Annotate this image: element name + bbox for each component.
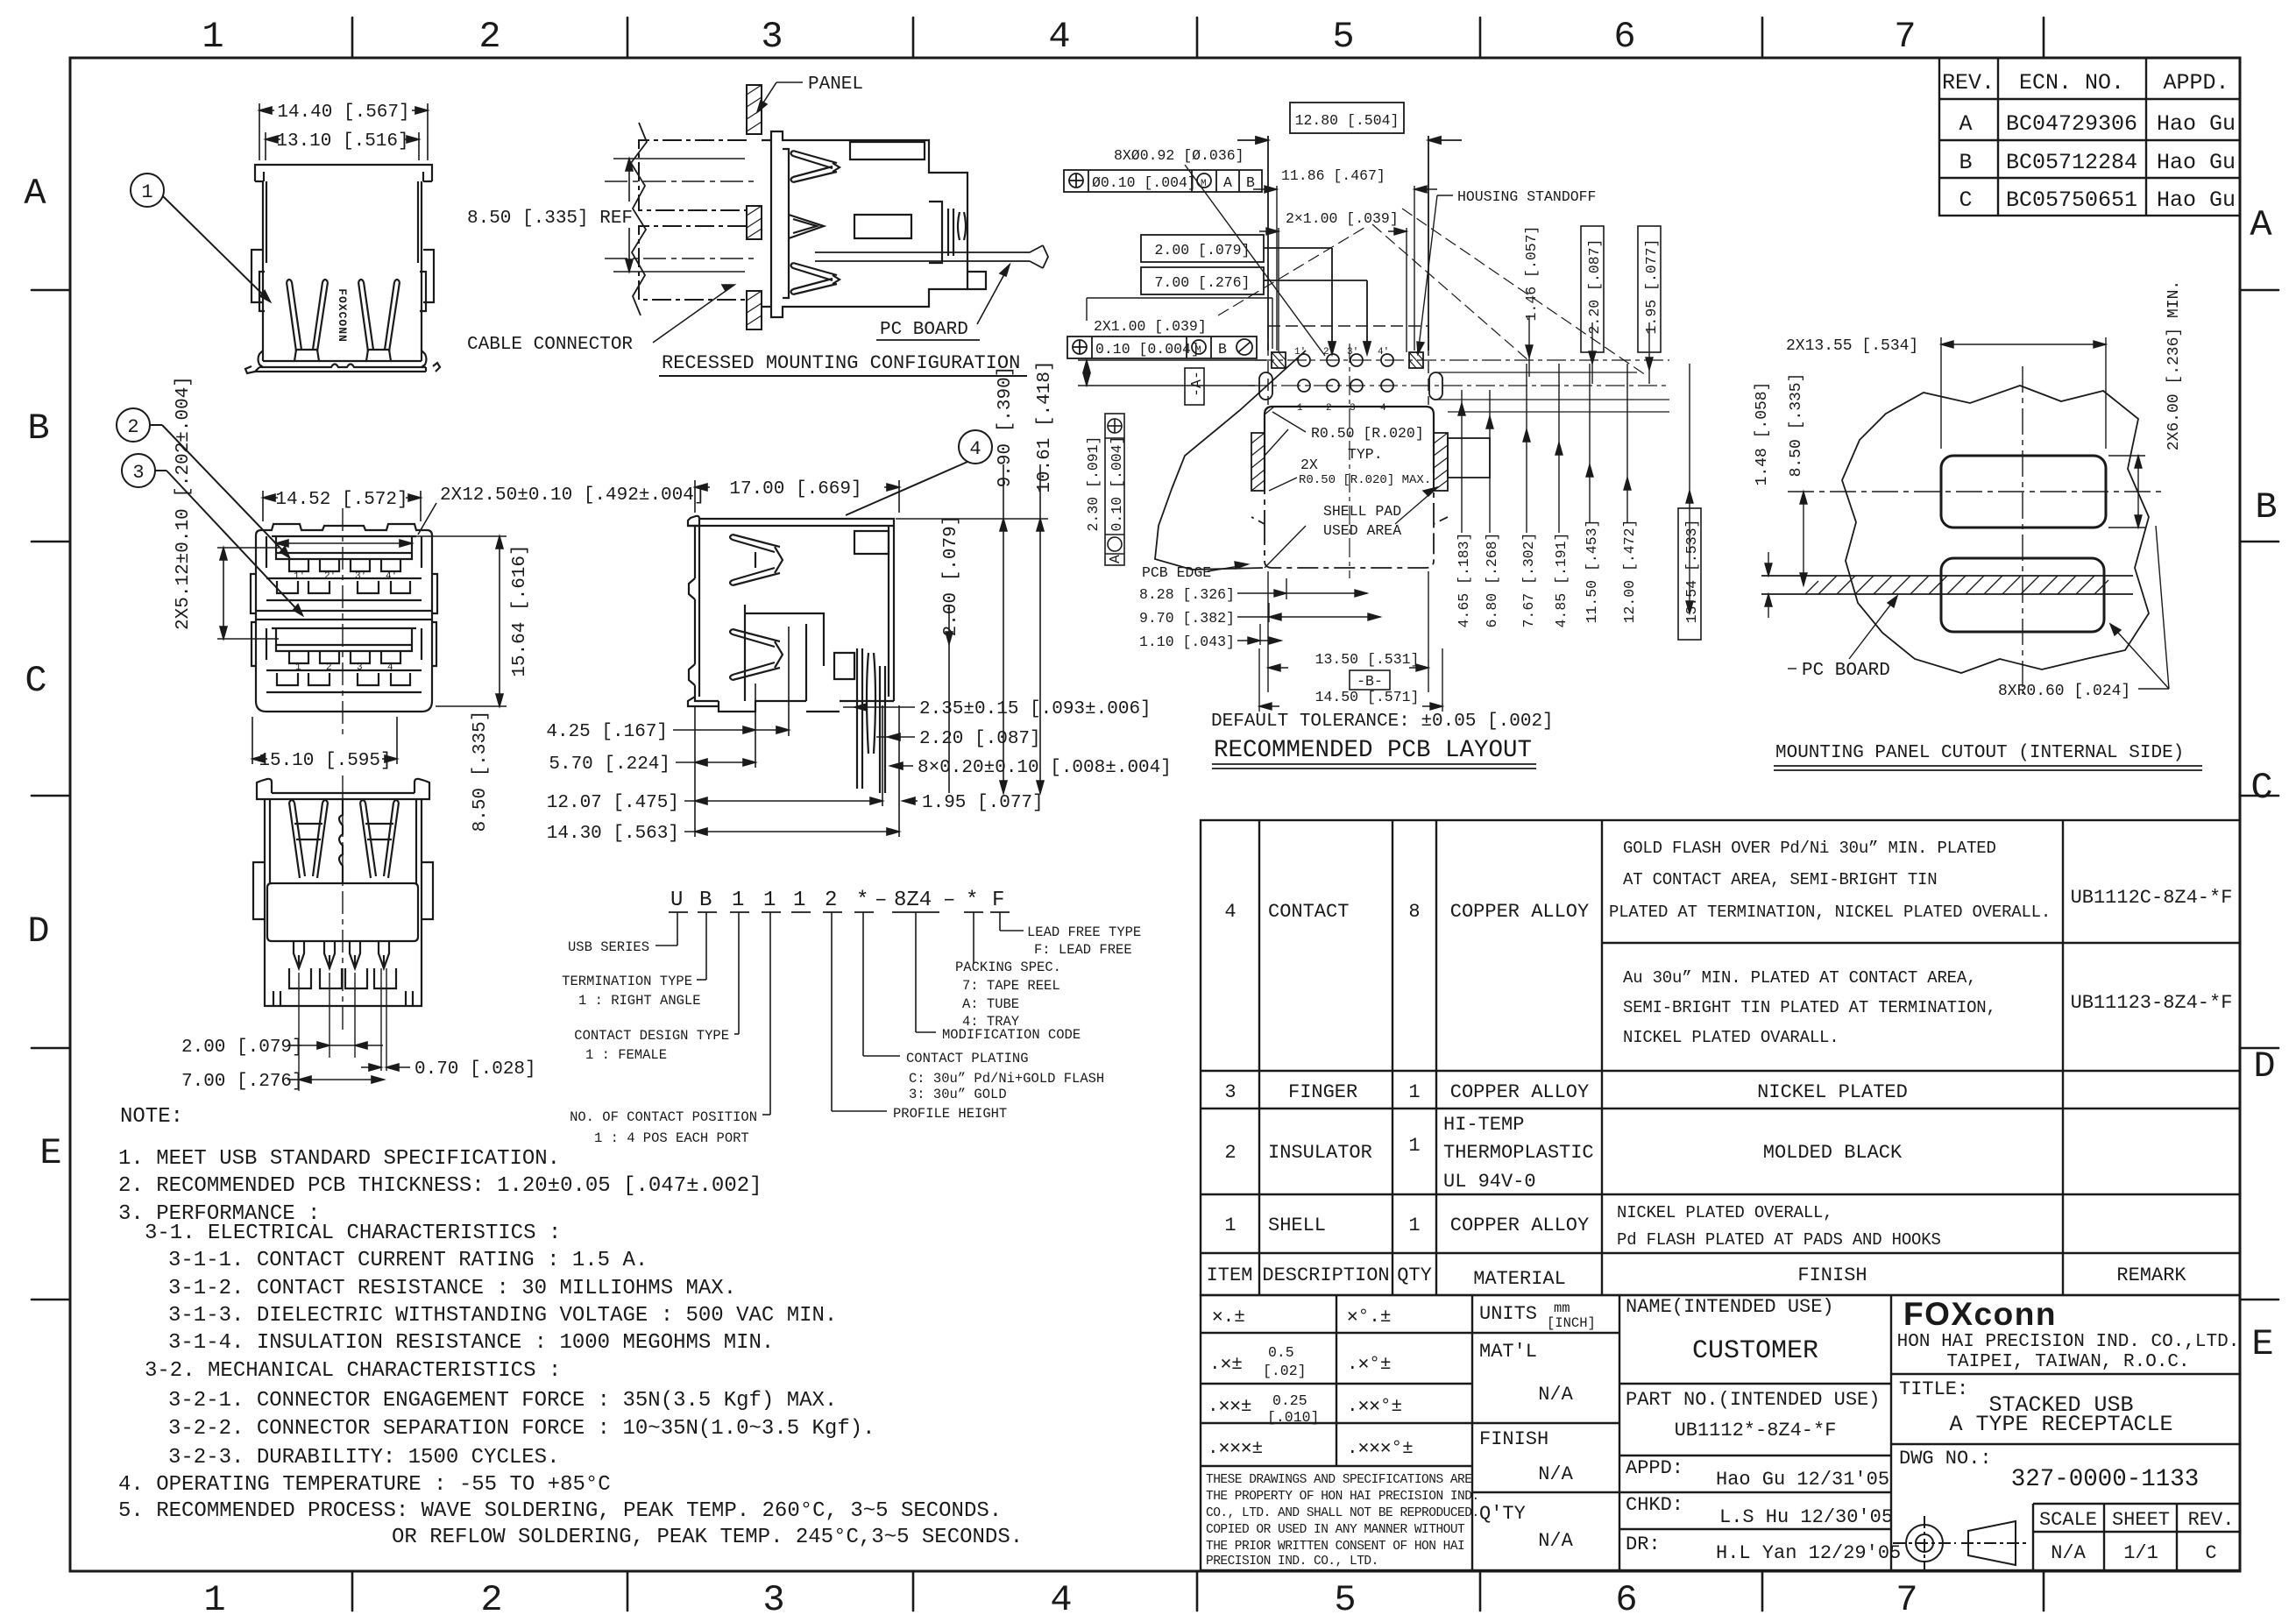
svg-text:4': 4'	[1378, 347, 1389, 358]
svg-text:[.010]: [.010]	[1267, 1409, 1319, 1426]
svg-text:3-2. MECHANICAL CHARACTERISTIC: 3-2. MECHANICAL CHARACTERISTICS :	[145, 1359, 561, 1383]
svg-text:1: 1	[732, 889, 744, 912]
svg-text:1 : 4 POS EACH PORT: 1 : 4 POS EACH PORT	[594, 1130, 749, 1146]
svg-text:*: *	[966, 889, 978, 912]
svg-text:Hao Gu: Hao Gu	[2157, 150, 2236, 175]
svg-text:mm: mm	[1554, 1300, 1570, 1316]
svg-text:N/A: N/A	[1538, 1384, 1573, 1406]
svg-text:8.50 [.335] REF: 8.50 [.335] REF	[467, 209, 633, 229]
svg-text:8.50 [.335]: 8.50 [.335]	[1788, 373, 1805, 478]
svg-text:3-2-3. DURABILITY: 1500 CYCLES: 3-2-3. DURABILITY: 1500 CYCLES.	[168, 1446, 559, 1470]
svg-text:MAT'L: MAT'L	[1479, 1341, 1537, 1363]
svg-text:2: 2	[825, 889, 837, 912]
svg-text:COPPER ALLOY: COPPER ALLOY	[1450, 1081, 1589, 1103]
svg-text:1: 1	[793, 889, 805, 912]
svg-text:.✕°±: .✕°±	[1347, 1355, 1391, 1375]
svg-text:7: 7	[1894, 16, 1916, 58]
svg-text:8Z4: 8Z4	[894, 889, 932, 912]
svg-text:2X12.50±0.10 [.492±.004]: 2X12.50±0.10 [.492±.004]	[440, 485, 705, 506]
svg-text:CONTACT DESIGN TYPE: CONTACT DESIGN TYPE	[574, 1028, 729, 1044]
svg-text:2X6.00 [.236] MIN.: 2X6.00 [.236] MIN.	[2165, 280, 2183, 450]
svg-text:1.95 [.077]: 1.95 [.077]	[1643, 239, 1660, 335]
svg-text:D: D	[2253, 1045, 2275, 1087]
svg-text:3-1-3. DIELECTRIC WITHSTANDING: 3-1-3. DIELECTRIC WITHSTANDING VOLTAGE :…	[168, 1304, 837, 1328]
svg-text:RECESSED MOUNTING CONFIGURATIO: RECESSED MOUNTING CONFIGURATION	[662, 352, 1020, 374]
svg-text:INSULATOR: INSULATOR	[1268, 1142, 1372, 1164]
svg-text:6: 6	[1615, 1579, 1637, 1621]
svg-text:TYP.: TYP.	[1348, 446, 1383, 463]
svg-text:D: D	[27, 910, 49, 953]
svg-text:4: 4	[1048, 16, 1070, 58]
svg-text:PCB EDGE: PCB EDGE	[1142, 564, 1211, 581]
svg-text:4.25 [.167]: 4.25 [.167]	[546, 722, 668, 742]
svg-text:1: 1	[1297, 403, 1303, 414]
svg-text:1: 1	[1408, 1215, 1420, 1236]
svg-text:4.65 [.183]: 4.65 [.183]	[1456, 533, 1472, 628]
svg-text:2.35±0.15 [.093±.006]: 2.35±0.15 [.093±.006]	[919, 699, 1152, 719]
svg-text:3: 3	[132, 462, 144, 484]
svg-text:6: 6	[1613, 16, 1635, 58]
svg-text:1: 1	[1408, 1081, 1420, 1103]
svg-text:8XR0.60 [.024]: 8XR0.60 [.024]	[1998, 683, 2130, 700]
svg-text:N/A: N/A	[1538, 1463, 1573, 1485]
svg-text:2.00 [.079]: 2.00 [.079]	[181, 1038, 303, 1058]
svg-text:TERMINATION TYPE: TERMINATION TYPE	[562, 974, 692, 989]
svg-text:2: 2	[1224, 1142, 1236, 1164]
svg-text:4: TRAY: 4: TRAY	[962, 1014, 1020, 1030]
svg-text:4': 4'	[386, 571, 397, 582]
svg-text:3-1-4. INSULATION RESISTANCE :: 3-1-4. INSULATION RESISTANCE : 1000 MEGO…	[168, 1331, 774, 1355]
svg-text:0.10 [0.004]: 0.10 [0.004]	[1095, 341, 1200, 358]
svg-text:HI-TEMP: HI-TEMP	[1443, 1114, 1524, 1136]
svg-text:3-1-1. CONTACT CURRENT RATING: 3-1-1. CONTACT CURRENT RATING : 1.5 A.	[168, 1249, 648, 1272]
svg-text:1: 1	[1224, 1215, 1236, 1236]
svg-text:PRECISION IND. CO., LTD.: PRECISION IND. CO., LTD.	[1206, 1555, 1378, 1569]
svg-text:SHELL: SHELL	[1268, 1215, 1326, 1236]
svg-text:MOLDED BLACK: MOLDED BLACK	[1763, 1142, 1903, 1164]
svg-text:2X5.12±0.10 [.202±.004]: 2X5.12±0.10 [.202±.004]	[174, 376, 194, 630]
svg-text:B: B	[1246, 174, 1255, 191]
svg-text:.✕✕✕±: .✕✕✕±	[1208, 1439, 1263, 1459]
svg-text:5. RECOMMENDED PROCESS: WAVE S: 5. RECOMMENDED PROCESS: WAVE SOLDERING, …	[118, 1499, 1002, 1523]
svg-text:-A-: -A-	[1188, 371, 1205, 397]
svg-text:11.86 [.467]: 11.86 [.467]	[1281, 167, 1385, 184]
svg-text:COPIED OR USED IN ANY MANNER W: COPIED OR USED IN ANY MANNER WITHOUT	[1206, 1523, 1465, 1537]
svg-text:CUSTOMER: CUSTOMER	[1692, 1336, 1818, 1366]
svg-text:A: A	[1959, 111, 1972, 137]
svg-text:2×1.00 [.039]: 2×1.00 [.039]	[1286, 210, 1399, 227]
svg-text:1: 1	[295, 662, 301, 673]
svg-text:NAME(INTENDED USE): NAME(INTENDED USE)	[1626, 1296, 1834, 1318]
svg-text:2: 2	[480, 1579, 502, 1621]
svg-text:B: B	[1218, 341, 1227, 358]
svg-text:SHELL PAD: SHELL PAD	[1323, 503, 1401, 520]
svg-text:B: B	[27, 407, 49, 450]
svg-text:14.30 [.563]: 14.30 [.563]	[547, 824, 679, 844]
svg-text:-B-: -B-	[1357, 673, 1383, 690]
svg-text:SCALE: SCALE	[2039, 1509, 2097, 1531]
svg-text:LEAD FREE TYPE: LEAD FREE TYPE	[1027, 924, 1141, 940]
svg-text:PANEL: PANEL	[808, 74, 863, 95]
svg-text:GOLD FLASH OVER Pd/Ni 30u” MIN: GOLD FLASH OVER Pd/Ni 30u” MIN. PLATED	[1623, 839, 1996, 858]
svg-text:A: A	[1107, 555, 1123, 563]
svg-text:14.50 [.571]: 14.50 [.571]	[1315, 689, 1420, 705]
svg-text:3: 3	[761, 16, 783, 58]
svg-text:–: –	[943, 889, 955, 912]
svg-text:APPD.: APPD.	[2163, 70, 2229, 96]
svg-text:APPD:: APPD:	[1626, 1457, 1683, 1479]
svg-text:1 : RIGHT ANGLE: 1 : RIGHT ANGLE	[578, 993, 701, 1009]
svg-text:SEMI-BRIGHT TIN PLATED AT TERM: SEMI-BRIGHT TIN PLATED AT TERMINATION,	[1623, 998, 1996, 1017]
svg-text:4: 4	[1380, 403, 1386, 414]
svg-text:2.30 [.091]: 2.30 [.091]	[1085, 436, 1102, 532]
svg-text:8XØ0.92 [Ø.036]: 8XØ0.92 [Ø.036]	[1114, 147, 1244, 164]
svg-text:13.50 [.531]: 13.50 [.531]	[1315, 651, 1420, 668]
svg-text:2: 2	[127, 416, 138, 438]
svg-text:UL 94V-0: UL 94V-0	[1443, 1171, 1536, 1193]
svg-text:H.L Yan 12/29'05: H.L Yan 12/29'05	[1716, 1542, 1901, 1564]
svg-text:N/A: N/A	[1538, 1530, 1573, 1552]
svg-text:E: E	[2251, 1323, 2273, 1365]
svg-text:1': 1'	[294, 571, 305, 582]
svg-text:11.50 [.453]: 11.50 [.453]	[1584, 520, 1600, 624]
svg-text:Ø0.10 [.004]: Ø0.10 [.004]	[1092, 174, 1196, 191]
svg-text:1: 1	[202, 16, 223, 58]
svg-text:REV.: REV.	[2188, 1509, 2235, 1531]
svg-text:NO. OF CONTACT POSITION: NO. OF CONTACT POSITION	[570, 1109, 757, 1125]
svg-text:M: M	[1201, 179, 1207, 189]
svg-text:REMARK: REMARK	[2116, 1264, 2186, 1286]
svg-text:8×0.20±0.10 [.008±.004]: 8×0.20±0.10 [.008±.004]	[918, 758, 1172, 778]
svg-text:7: 7	[1896, 1579, 1917, 1621]
svg-text:.✕✕±: .✕✕±	[1208, 1397, 1252, 1417]
svg-text:SHEET: SHEET	[2112, 1509, 2170, 1531]
svg-text:BC05712284: BC05712284	[2006, 150, 2137, 175]
svg-text:2: 2	[326, 662, 332, 673]
svg-text:Au 30u” MIN. PLATED AT CONTAC: Au 30u” MIN. PLATED AT CONTACT AREA,	[1623, 968, 1976, 988]
svg-text:1: 1	[141, 181, 152, 203]
svg-text:FINISH: FINISH	[1797, 1264, 1867, 1286]
svg-text:3-1-2. CONTACT RESISTANCE : 30: 3-1-2. CONTACT RESISTANCE : 30 MILLIOHMS…	[168, 1277, 736, 1300]
svg-text:3-2-1. CONNECTOR ENGAGEMENT FO: 3-2-1. CONNECTOR ENGAGEMENT FORCE : 35N(…	[168, 1389, 837, 1413]
svg-text:1.10 [.043]: 1.10 [.043]	[1139, 634, 1235, 650]
svg-text:NICKEL PLATED: NICKEL PLATED	[1757, 1081, 1908, 1103]
svg-text:UB11123-8Z4-*F: UB11123-8Z4-*F	[2071, 992, 2233, 1014]
svg-text:9.90 [.390]: 9.90 [.390]	[996, 366, 1016, 488]
svg-text:3: 3	[762, 1579, 784, 1621]
svg-text:12.00 [.472]: 12.00 [.472]	[1621, 520, 1638, 624]
svg-text:DWG NO.:: DWG NO.:	[1899, 1448, 1992, 1470]
svg-text:PC BOARD: PC BOARD	[1802, 661, 1890, 681]
svg-text:R0.50 [R.020] MAX.: R0.50 [R.020] MAX.	[1299, 473, 1431, 487]
svg-text:THE PROPERTY OF HON HAI PRECIS: THE PROPERTY OF HON HAI PRECISION IND.	[1206, 1490, 1479, 1504]
svg-text:NOTE:: NOTE:	[120, 1105, 183, 1129]
svg-text:14.40 [.567]: 14.40 [.567]	[277, 103, 409, 123]
svg-text:8.28 [.326]: 8.28 [.326]	[1139, 586, 1235, 603]
svg-text:.✕±: .✕±	[1209, 1355, 1243, 1375]
svg-text:A: A	[1223, 174, 1232, 191]
svg-text:13.54 [.533]: 13.54 [.533]	[1683, 520, 1700, 624]
svg-text:CONTACT: CONTACT	[1268, 901, 1349, 923]
svg-text:C: 30u” Pd/Ni+GOLD FLASH: C: 30u” Pd/Ni+GOLD FLASH	[909, 1071, 1104, 1087]
svg-text:CABLE CONNECTOR: CABLE CONNECTOR	[467, 335, 633, 355]
svg-text:Hao Gu: Hao Gu	[2157, 188, 2236, 213]
svg-text:B: B	[699, 889, 712, 912]
svg-text:8: 8	[1408, 901, 1420, 923]
svg-text:FINGER: FINGER	[1288, 1081, 1357, 1103]
svg-text:9.70 [.382]: 9.70 [.382]	[1139, 610, 1235, 627]
svg-text:2': 2'	[1323, 347, 1335, 358]
svg-text:A: TUBE: A: TUBE	[962, 996, 1019, 1012]
svg-text:MOUNTING PANEL CUTOUT (INTERNA: MOUNTING PANEL CUTOUT (INTERNAL SIDE)	[1775, 743, 2184, 763]
svg-text:2.20 [.087]: 2.20 [.087]	[919, 729, 1041, 749]
svg-text:TITLE:: TITLE:	[1899, 1378, 1968, 1400]
svg-text:FOXCONN: FOXCONN	[336, 288, 349, 343]
svg-text:3: 30u” GOLD: 3: 30u” GOLD	[909, 1087, 1007, 1102]
svg-text:3: 3	[357, 662, 363, 673]
svg-text:1.46 [.057]: 1.46 [.057]	[1523, 226, 1540, 322]
svg-text:1.48 [.058]: 1.48 [.058]	[1754, 382, 1771, 486]
svg-text:Hao Gu: Hao Gu	[2157, 111, 2236, 137]
svg-text:F: F	[992, 889, 1004, 912]
svg-text:[.02]: [.02]	[1263, 1363, 1307, 1379]
svg-text:ITEM: ITEM	[1207, 1264, 1253, 1286]
svg-text:USED AREA: USED AREA	[1323, 522, 1401, 539]
svg-text:5: 5	[1334, 1579, 1356, 1621]
svg-text:Hao Gu 12/31'05: Hao Gu 12/31'05	[1716, 1469, 1889, 1491]
svg-text:2.00 [.079]: 2.00 [.079]	[1155, 242, 1251, 259]
svg-text:N/A: N/A	[2051, 1542, 2086, 1564]
svg-text:6.80 [.268]: 6.80 [.268]	[1484, 533, 1500, 628]
svg-text:DESCRIPTION: DESCRIPTION	[1262, 1264, 1389, 1286]
svg-text:3: 3	[1224, 1081, 1236, 1103]
svg-text:DEFAULT TOLERANCE: ±0.05 [.002: DEFAULT TOLERANCE: ±0.05 [.002]	[1211, 712, 1554, 732]
svg-text:2.20 [.087]: 2.20 [.087]	[1586, 239, 1603, 335]
svg-text:AT CONTACT AREA, SEMI-BRIGHT T: AT CONTACT AREA, SEMI-BRIGHT TIN	[1623, 870, 1937, 889]
svg-text:0.25: 0.25	[1272, 1392, 1307, 1409]
svg-text:PART NO.(INTENDED USE): PART NO.(INTENDED USE)	[1626, 1389, 1880, 1411]
svg-text:C: C	[2250, 767, 2272, 809]
svg-text:B: B	[2255, 486, 2277, 528]
svg-text:8.50 [.335]: 8.50 [.335]	[471, 711, 491, 832]
svg-text:17.00 [.669]: 17.00 [.669]	[729, 479, 861, 499]
svg-text:5: 5	[1332, 16, 1354, 58]
svg-text:UB1112C-8Z4-*F: UB1112C-8Z4-*F	[2071, 887, 2233, 909]
svg-text:A: A	[24, 173, 46, 215]
svg-text:2. RECOMMENDED PCB THICKNESS:: 2. RECOMMENDED PCB THICKNESS: 1.20±0.05 …	[118, 1174, 762, 1198]
svg-text:2X: 2X	[1300, 457, 1318, 473]
svg-text:12.07 [.475]: 12.07 [.475]	[547, 793, 679, 813]
svg-text:0.5: 0.5	[1268, 1344, 1294, 1361]
svg-text:USB SERIES: USB SERIES	[568, 939, 649, 955]
svg-text:✕.±: ✕.±	[1212, 1307, 1245, 1328]
svg-text:Q'TY: Q'TY	[1479, 1503, 1526, 1525]
svg-text:.✕✕°±: .✕✕°±	[1347, 1397, 1402, 1417]
svg-text:2.00 [.079]: 2.00 [.079]	[941, 515, 961, 637]
svg-text:Pd FLASH PLATED AT PADS AND HO: Pd FLASH PLATED AT PADS AND HOOKS	[1617, 1230, 1941, 1250]
svg-text:7.00 [.276]: 7.00 [.276]	[181, 1072, 303, 1092]
svg-text:ECN. NO.: ECN. NO.	[2019, 70, 2124, 96]
svg-text:4: 4	[1050, 1579, 1072, 1621]
svg-text:7.00 [.276]: 7.00 [.276]	[1155, 274, 1251, 291]
svg-text:C: C	[1959, 188, 1972, 213]
svg-text:REV.: REV.	[1942, 70, 1995, 96]
svg-text:A TYPE RECEPTACLE: A TYPE RECEPTACLE	[1949, 1412, 2172, 1437]
svg-text:7: TAPE REEL: 7: TAPE REEL	[962, 978, 1060, 994]
svg-text:–: –	[875, 889, 887, 912]
svg-text:C: C	[2205, 1542, 2216, 1564]
svg-text:THERMOPLASTIC: THERMOPLASTIC	[1443, 1142, 1594, 1164]
svg-text:U: U	[670, 889, 683, 912]
svg-text:TAIPEI, TAIWAN, R.O.C.: TAIPEI, TAIWAN, R.O.C.	[1946, 1352, 2189, 1372]
svg-text:BC05750651: BC05750651	[2006, 188, 2137, 213]
svg-text:A: A	[2250, 204, 2272, 246]
svg-text:1: 1	[203, 1579, 225, 1621]
svg-text:COPPER ALLOY: COPPER ALLOY	[1450, 901, 1589, 923]
svg-text:2X1.00 [.039]: 2X1.00 [.039]	[1094, 318, 1207, 335]
svg-text:THE PRIOR WRITTEN CONSENT OF H: THE PRIOR WRITTEN CONSENT OF HON HAI	[1206, 1540, 1464, 1554]
svg-text:1: 1	[763, 889, 776, 912]
svg-text:[INCH]: [INCH]	[1547, 1315, 1596, 1331]
svg-text:5.70 [.224]: 5.70 [.224]	[549, 754, 670, 775]
svg-text:12.80 [.504]: 12.80 [.504]	[1295, 112, 1400, 129]
svg-text:C: C	[25, 660, 46, 702]
svg-text:3: 3	[1350, 403, 1356, 414]
svg-text:NICKEL PLATED OVERALL,: NICKEL PLATED OVERALL,	[1617, 1203, 1832, 1222]
svg-text:✕°.±: ✕°.±	[1347, 1307, 1391, 1328]
svg-text:UNITS: UNITS	[1479, 1303, 1537, 1325]
svg-text:BC04729306: BC04729306	[2006, 111, 2137, 137]
svg-text:PLATED AT TERMINATION, NICKEL: PLATED AT TERMINATION, NICKEL PLATED OVE…	[1609, 903, 2051, 922]
svg-text:327-0000-1133: 327-0000-1133	[2011, 1466, 2200, 1493]
svg-text:E: E	[39, 1132, 61, 1174]
svg-text:1: 1	[1408, 1135, 1420, 1157]
svg-text:R0.50 [R.020]: R0.50 [R.020]	[1311, 425, 1424, 442]
svg-text:HON HAI PRECISION IND. CO.,LTD: HON HAI PRECISION IND. CO.,LTD.	[1897, 1332, 2240, 1352]
svg-text:3': 3'	[355, 571, 366, 582]
svg-text:14.52 [.572]: 14.52 [.572]	[275, 490, 407, 510]
svg-text:2: 2	[478, 16, 500, 58]
svg-text:OR REFLOW SOLDERING, PEAK TEMP: OR REFLOW SOLDERING, PEAK TEMP. 245°C,3~…	[392, 1526, 1023, 1549]
svg-text:PACKING SPEC.: PACKING SPEC.	[955, 960, 1061, 975]
svg-text:CONTACT PLATING: CONTACT PLATING	[906, 1051, 1029, 1066]
svg-text:DR:: DR:	[1626, 1533, 1661, 1555]
svg-text:FINISH: FINISH	[1479, 1428, 1548, 1450]
svg-text:0.10 [.004]: 0.10 [.004]	[1109, 436, 1125, 532]
svg-text:COPPER ALLOY: COPPER ALLOY	[1450, 1215, 1589, 1236]
svg-text:15.64 [.616]: 15.64 [.616]	[510, 544, 530, 676]
svg-text:*: *	[856, 889, 868, 912]
svg-text:10.61 [.418]: 10.61 [.418]	[1035, 360, 1055, 492]
svg-text:F: LEAD FREE: F: LEAD FREE	[1034, 942, 1132, 958]
svg-text:THESE DRAWINGS AND SPECIFICATI: THESE DRAWINGS AND SPECIFICATIONS ARE	[1206, 1473, 1471, 1487]
svg-text:2': 2'	[324, 571, 336, 582]
svg-text:HOUSING STANDOFF: HOUSING STANDOFF	[1457, 188, 1596, 205]
svg-text:4.85 [.191]: 4.85 [.191]	[1553, 533, 1570, 628]
svg-text:4: 4	[387, 662, 393, 673]
svg-text:4. OPERATING TEMPERATURE : -55: 4. OPERATING TEMPERATURE : -55 TO +85°C	[118, 1473, 611, 1497]
svg-text:B: B	[1959, 150, 1972, 175]
svg-text:QTY: QTY	[1397, 1264, 1432, 1286]
svg-text:4: 4	[969, 438, 981, 460]
svg-text:0.70 [.028]: 0.70 [.028]	[415, 1059, 536, 1080]
svg-text:1.95 [.077]: 1.95 [.077]	[922, 793, 1044, 813]
svg-text:M: M	[1195, 345, 1201, 356]
svg-text:CHKD:: CHKD:	[1626, 1494, 1683, 1516]
svg-text:MATERIAL: MATERIAL	[1473, 1268, 1566, 1290]
svg-text:FOXconn: FOXconn	[1903, 1296, 2057, 1332]
svg-text:L.S Hu 12/30'05: L.S Hu 12/30'05	[1719, 1506, 1893, 1528]
svg-text:7.67 [.302]: 7.67 [.302]	[1520, 533, 1537, 628]
svg-text:RECOMMENDED PCB LAYOUT: RECOMMENDED PCB LAYOUT	[1214, 737, 1532, 764]
svg-text:NICKEL PLATED OVARALL.: NICKEL PLATED OVARALL.	[1623, 1028, 1839, 1047]
svg-text:13.10 [.516]: 13.10 [.516]	[276, 131, 408, 152]
svg-text:2: 2	[1326, 403, 1332, 414]
svg-text:3': 3'	[1347, 347, 1358, 358]
svg-text:PC BOARD: PC BOARD	[880, 320, 968, 340]
svg-text:PROFILE HEIGHT: PROFILE HEIGHT	[893, 1106, 1007, 1122]
svg-text:1/1: 1/1	[2123, 1542, 2158, 1564]
svg-text:15.10 [.595]: 15.10 [.595]	[259, 751, 391, 771]
svg-text:2X13.55 [.534]: 2X13.55 [.534]	[1786, 337, 1918, 355]
svg-text:1. MEET USB STANDARD SPECIFICA: 1. MEET USB STANDARD SPECIFICATION.	[118, 1147, 560, 1171]
svg-text:CO., LTD. AND SHALL NOT BE REP: CO., LTD. AND SHALL NOT BE REPRODUCED.	[1206, 1506, 1479, 1520]
svg-text:.✕✕✕°±: .✕✕✕°±	[1347, 1439, 1414, 1459]
svg-text:1 : FEMALE: 1 : FEMALE	[585, 1047, 667, 1063]
svg-text:3-2-2. CONNECTOR SEPARATION FO: 3-2-2. CONNECTOR SEPARATION FORCE : 10~3…	[168, 1417, 875, 1441]
svg-text:4: 4	[1224, 901, 1236, 923]
svg-text:UB1112*-8Z4-*F: UB1112*-8Z4-*F	[1675, 1420, 1837, 1441]
svg-text:3-1. ELECTRICAL CHARACTERISTIC: 3-1. ELECTRICAL CHARACTERISTICS :	[145, 1222, 561, 1245]
